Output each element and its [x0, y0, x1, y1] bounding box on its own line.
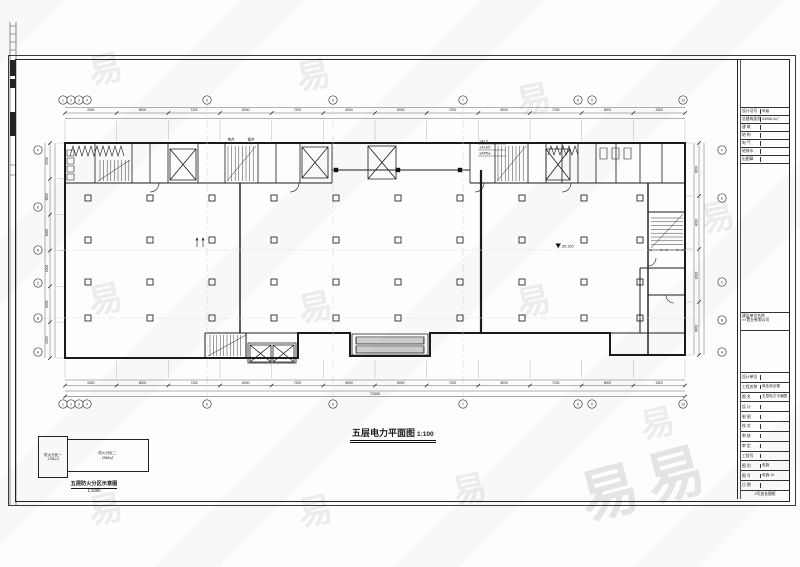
titleblock-row: 设计单位	[741, 373, 789, 383]
titleblock-row: 给排水	[741, 148, 789, 156]
titleblock-row-value: 电施-15	[761, 474, 789, 478]
titleblock-row-value: 五层电力平面图	[761, 395, 789, 399]
titleblock-row-label: 工程号	[741, 454, 761, 458]
titleblock-row: 校 对	[741, 422, 789, 432]
titleblock-row: 制 图	[741, 412, 789, 422]
keyplan-scale: 1:1000	[40, 488, 148, 493]
titleblock-row-label: 出图章	[741, 157, 761, 161]
titleblock-row-label: 图 名	[741, 395, 761, 399]
keyplan-zone2: 防火分区二 2565㎡	[67, 439, 149, 472]
plan-title: 五层电力平面图1:100	[350, 426, 436, 441]
titleblock-row: 结 构	[741, 132, 789, 140]
keyplan-zone1: 防火分区一 1750㎡	[38, 436, 68, 478]
titleblock-row-label: 结 构	[741, 133, 761, 137]
owner-value: ××置业有限公司	[742, 318, 788, 322]
titleblock-row-label: 校 对	[741, 424, 761, 428]
titleblock-row: 日 期	[741, 481, 789, 491]
titleblock-row-label: 建 筑	[741, 125, 761, 129]
titleblock-row-label: 审 核	[741, 434, 761, 438]
titleblock-row-label: 设计单位	[741, 375, 761, 379]
titleblock-row: 出图章	[741, 156, 789, 164]
titleblock-row-value: 34956.4㎡	[761, 118, 789, 122]
titleblock-row-value: 电施	[761, 464, 789, 468]
titleblock-row: 设计证号甲级	[741, 108, 789, 116]
titleblock-row-label: 设 计	[741, 405, 761, 409]
titleblock-row-label: 给排水	[741, 149, 761, 153]
titleblock-row-label: 设计证号	[741, 109, 761, 113]
keyplan-caption: 五层防火分区示意图	[40, 480, 148, 487]
titleblock-row: 总建筑面积34956.4㎡	[741, 116, 789, 124]
titleblock-row: 图 别电施	[741, 461, 789, 471]
titleblock-row: 工程名称商业综合楼	[741, 383, 789, 393]
titleblock-row-value: 甲级	[761, 110, 789, 114]
titleblock-row-label: 图 别	[741, 464, 761, 468]
titleblock-row-value: 商业综合楼	[761, 385, 789, 389]
sheet-size-note: 2号加长图框	[741, 492, 789, 498]
titleblock-row-label: 电 气	[741, 141, 761, 145]
title-block-bottom-rows: 设计单位工程名称商业综合楼图 名五层电力平面图设 计制 图校 对审 核审 定工程…	[741, 372, 789, 491]
titleblock-row-label: 总建筑面积	[741, 117, 761, 121]
title-block: 设计证号甲级总建筑面积34956.4㎡建 筑结 构电 气给排水出图章 建设单位名…	[737, 60, 789, 499]
titleblock-row: 设 计	[741, 402, 789, 412]
titleblock-row: 工程号	[741, 452, 789, 462]
plan-title-text: 五层电力平面图	[352, 428, 415, 438]
drawing-sheet: 易易易易易易易易易易易易易 1122334455667788991010FEDC…	[0, 0, 800, 567]
titleblock-row-label: 制 图	[741, 415, 761, 419]
titleblock-row: 审 定	[741, 442, 789, 452]
zone1-area: 1750㎡	[47, 457, 59, 461]
titleblock-row: 图 号电施-15	[741, 471, 789, 481]
titleblock-row: 审 核	[741, 432, 789, 442]
title-block-top-rows: 设计证号甲级总建筑面积34956.4㎡建 筑结 构电 气给排水出图章	[741, 107, 789, 157]
plan-scale: 1:100	[417, 431, 434, 438]
titleblock-row-label: 工程名称	[741, 385, 761, 389]
title-block-owner: 建设单位名称 ××置业有限公司	[741, 312, 789, 331]
zone2-area: 2565㎡	[102, 456, 114, 460]
titleblock-row-label: 图 号	[741, 474, 761, 478]
titleblock-row-label: 审 定	[741, 444, 761, 448]
titleblock-row-label: 日 期	[741, 483, 761, 487]
titleblock-row: 建 筑	[741, 124, 789, 132]
titleblock-row: 电 气	[741, 140, 789, 148]
titleblock-row: 图 名五层电力平面图	[741, 393, 789, 403]
